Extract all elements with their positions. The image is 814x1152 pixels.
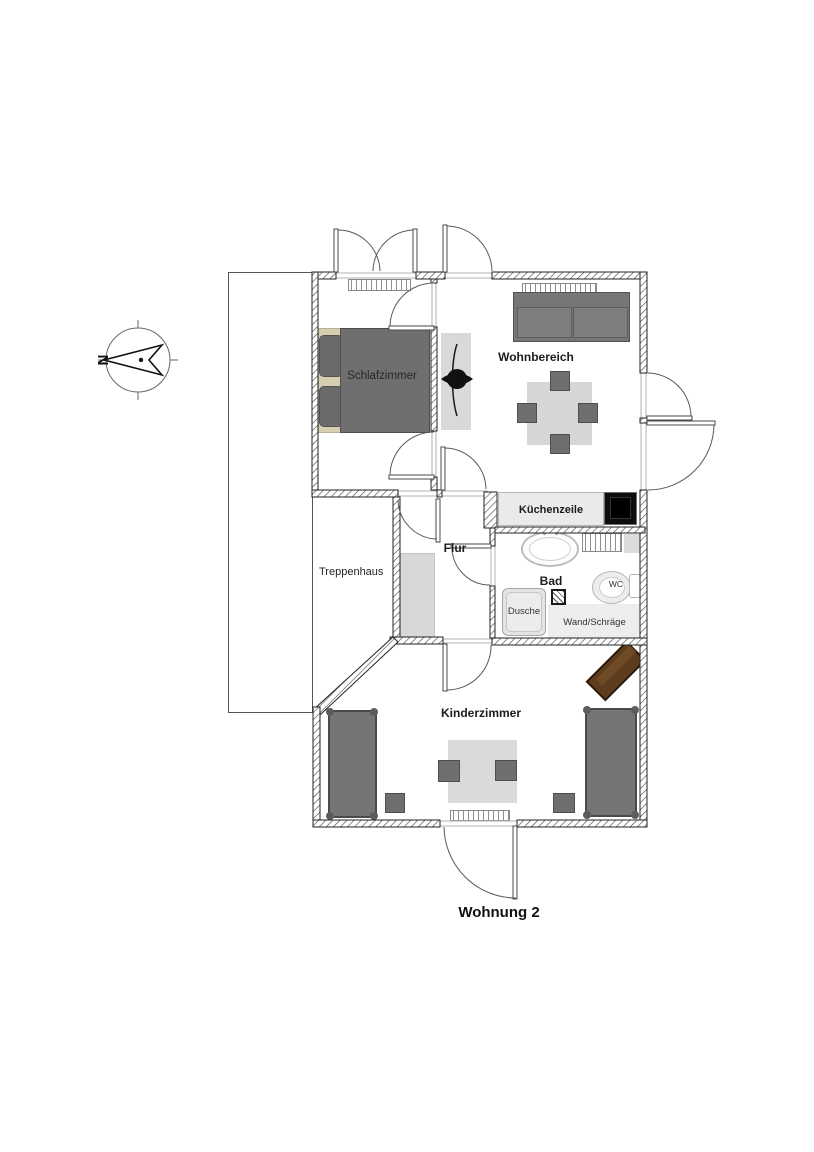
bed-post — [583, 706, 591, 714]
dining-chair — [550, 371, 570, 391]
wall — [431, 279, 437, 283]
wall — [312, 490, 398, 497]
door-swing — [390, 432, 434, 475]
room-label-kinderzimmer: Kinderzimmer — [421, 706, 541, 720]
sink-basin — [529, 537, 571, 561]
door-swing — [648, 425, 714, 490]
wall — [313, 820, 440, 827]
door-swing — [447, 226, 492, 271]
door-swing — [398, 500, 437, 539]
wall — [313, 707, 320, 827]
door-panel — [647, 416, 692, 420]
bed-post — [631, 706, 639, 714]
door-swing — [445, 448, 486, 489]
door-panel — [413, 229, 417, 272]
door-panel — [441, 447, 445, 490]
room-label-bad: Bad — [521, 574, 581, 588]
plant-rug — [441, 333, 471, 430]
door-swing — [338, 230, 380, 271]
door-panel — [647, 421, 715, 425]
child-chair — [438, 760, 460, 782]
room-label-flur: Flur — [425, 541, 485, 555]
plan-title: Wohnung 2 — [399, 904, 599, 922]
wall — [640, 418, 647, 423]
wall — [490, 586, 495, 638]
fixture-label-dusche: Dusche — [502, 605, 546, 619]
wall — [312, 272, 336, 279]
door-swing — [648, 373, 691, 416]
room-label-wohnbereich: Wohnbereich — [476, 350, 596, 364]
sofa-seat — [517, 307, 572, 338]
wall — [492, 272, 647, 279]
dining-chair — [578, 403, 598, 423]
wall — [416, 272, 445, 279]
wall — [490, 528, 495, 546]
sink-tap — [543, 532, 546, 535]
bed-post — [370, 708, 378, 716]
bed-post — [326, 812, 334, 820]
bed-post — [326, 708, 334, 716]
door-panel — [443, 225, 447, 272]
door-panel — [389, 475, 434, 479]
stairwell-shaft — [228, 272, 313, 713]
door-panel — [443, 644, 447, 691]
door-swing — [373, 230, 413, 271]
child-bed — [328, 710, 377, 818]
fixture-label-wc: WC — [600, 577, 632, 591]
duct-shaft — [551, 589, 566, 605]
room-label-kuechenzeile: Küchenzeile — [498, 503, 604, 517]
floor-plan: Schlafzimmer Wohnbereich Küchenzeile Flu… — [0, 0, 814, 1152]
wall — [484, 492, 497, 528]
door-panel — [436, 499, 440, 542]
bed-post — [370, 812, 378, 820]
wall — [517, 820, 647, 827]
door-panel — [513, 826, 517, 899]
wall — [495, 527, 645, 533]
bed-post — [583, 811, 591, 819]
stool — [553, 793, 575, 813]
wall-diagonal — [313, 637, 398, 715]
bed-post — [631, 811, 639, 819]
north-letter: N — [94, 351, 110, 369]
wall — [640, 272, 647, 373]
dining-chair — [517, 403, 537, 423]
radiator-bedroom — [348, 279, 411, 291]
door-swing — [447, 645, 491, 690]
wall — [437, 490, 442, 497]
wall — [431, 477, 437, 490]
sofa-seat — [573, 307, 628, 338]
wardrobe — [398, 553, 435, 641]
child-bed — [585, 708, 637, 817]
door-panel — [334, 229, 338, 272]
stool — [385, 793, 405, 813]
room-label-schlafzimmer: Schlafzimmer — [332, 369, 432, 383]
sink-tap — [555, 532, 558, 535]
room-label-treppenhaus: Treppenhaus — [319, 565, 399, 579]
child-chair — [495, 760, 517, 781]
bath-cabinet — [624, 534, 640, 553]
stove-top — [610, 497, 631, 519]
fixture-label-wand-schraege: Wand/Schräge — [548, 616, 641, 630]
radiator-bath — [582, 533, 622, 552]
dining-chair — [550, 434, 570, 454]
door-swing — [444, 827, 516, 898]
radiator-childroom — [450, 810, 510, 821]
